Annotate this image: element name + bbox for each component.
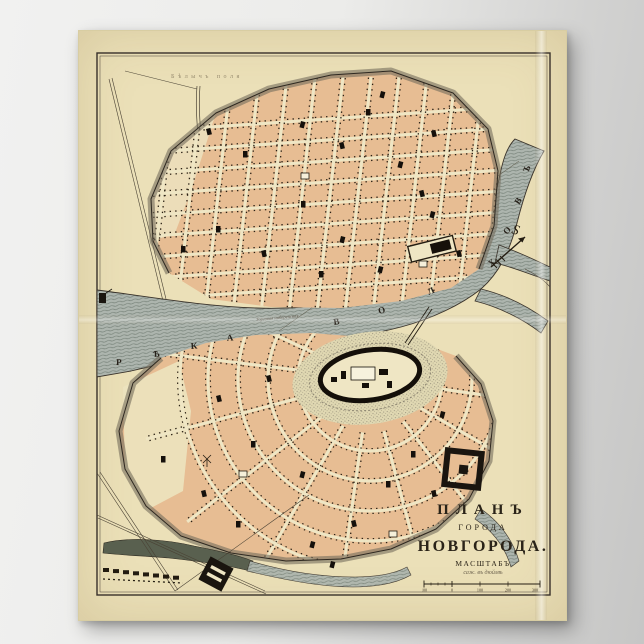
poster-city-name: НОВГОРОДА. xyxy=(415,539,551,555)
warehouses xyxy=(103,568,183,583)
poster-title: ПЛАНЪ xyxy=(415,503,551,518)
river-branch-southeast xyxy=(475,289,548,333)
poster-subtitle: ГОРОДА xyxy=(415,524,551,532)
upper-city xyxy=(147,71,514,313)
svg-text:100: 100 xyxy=(477,587,483,592)
river-letter: Ѣ xyxy=(153,349,161,359)
scale-note: саж. въ дюймѣ xyxy=(415,570,551,576)
title-block: ПЛАНЪ ГОРОДА НОВГОРОДА. МАСШТАБЪ саж. въ… xyxy=(415,503,551,593)
kremlin-cathedral xyxy=(351,367,375,380)
field-label: Бѣлычъ поля xyxy=(171,73,243,80)
scale-bar-labels: 100 0 100 200 300 xyxy=(422,587,538,592)
scene-background: Бѣлычъ поля xyxy=(0,0,644,644)
scale-heading: МАСШТАБЪ xyxy=(415,560,551,568)
svg-text:0: 0 xyxy=(451,587,453,592)
svg-text:300: 300 xyxy=(532,587,538,592)
river-branch-east xyxy=(495,245,550,281)
svg-text:200: 200 xyxy=(505,587,511,592)
map-poster: Бѣлычъ поля xyxy=(78,30,567,621)
river-letter: Р xyxy=(116,357,122,367)
svg-text:100: 100 xyxy=(422,587,427,592)
stream xyxy=(247,561,411,587)
scale-bar: 100 0 100 200 300 xyxy=(422,578,544,593)
